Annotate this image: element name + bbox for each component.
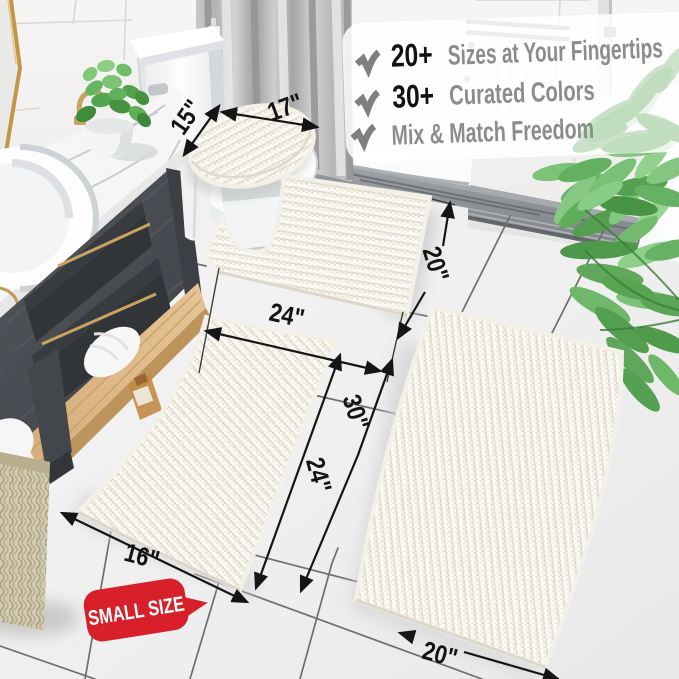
svg-text:20+: 20+ [390, 37, 433, 74]
svg-text:Curated Colors: Curated Colors [449, 76, 595, 112]
svg-text:30+: 30+ [392, 78, 435, 115]
